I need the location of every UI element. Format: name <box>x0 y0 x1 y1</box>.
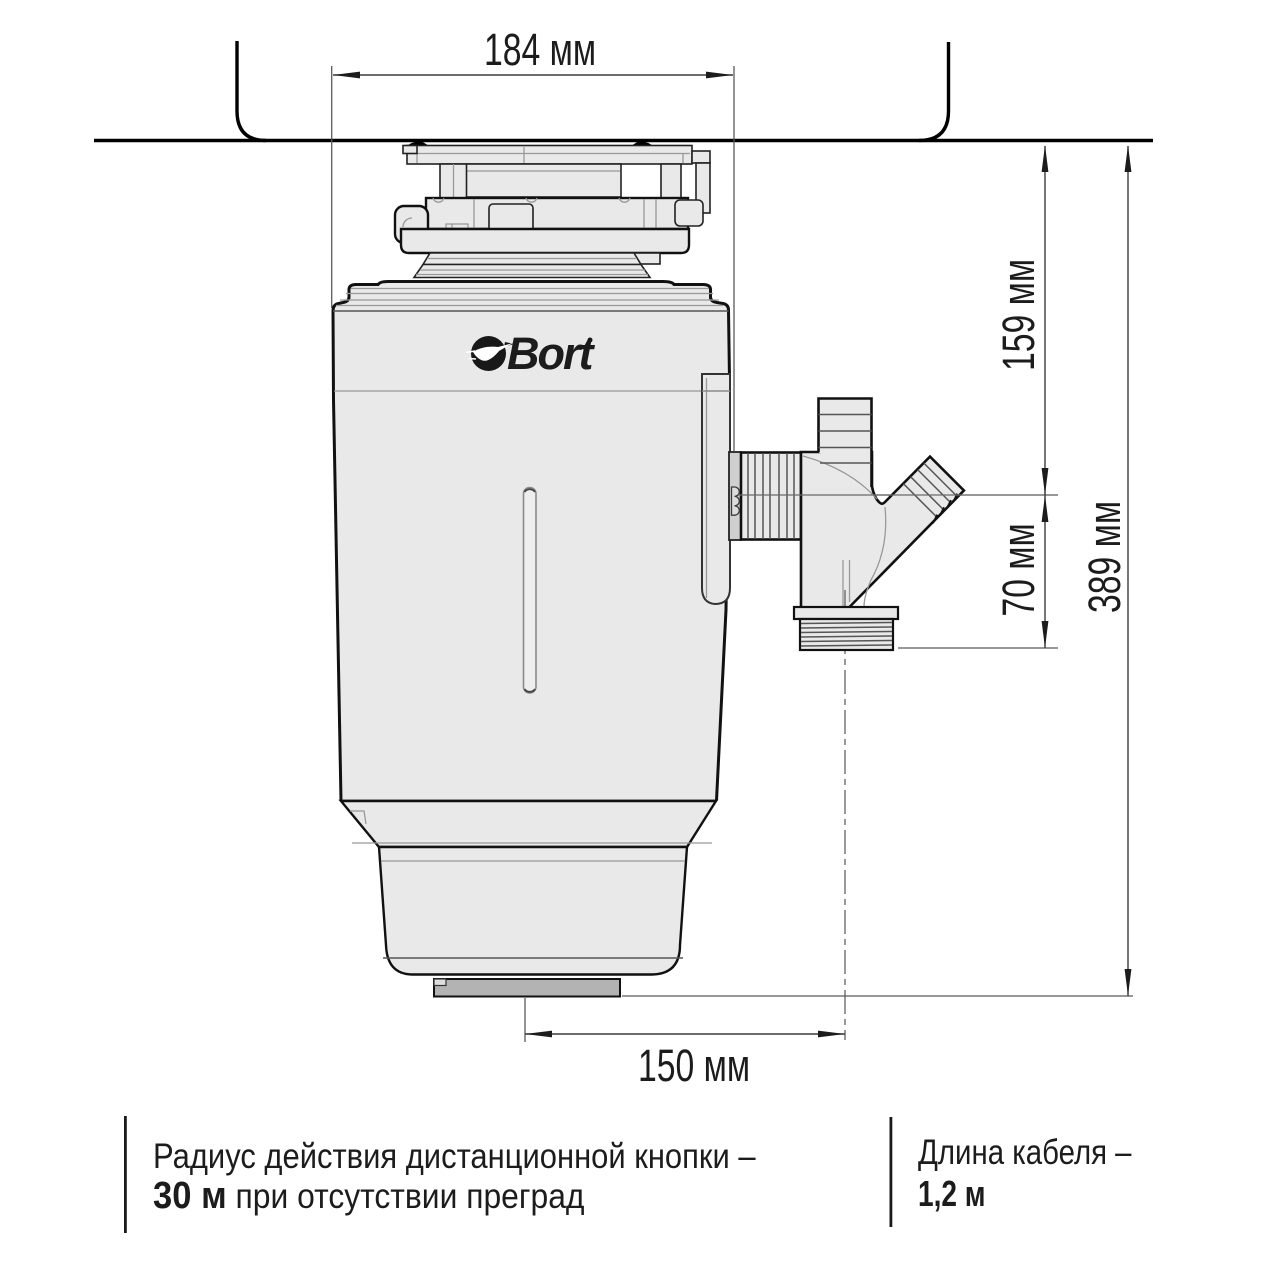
svg-text:389 мм: 389 мм <box>1080 501 1130 613</box>
svg-text:70 мм: 70 мм <box>994 523 1044 616</box>
svg-text:Длина кабеля –: Длина кабеля – <box>918 1133 1132 1172</box>
svg-text:Bort: Bort <box>507 328 595 379</box>
svg-text:184 мм: 184 мм <box>484 25 596 75</box>
svg-text:150 мм: 150 мм <box>638 1041 750 1091</box>
svg-text:30 м при отсутствии преград: 30 м при отсутствии преград <box>153 1173 585 1216</box>
svg-text:159 мм: 159 мм <box>994 259 1044 371</box>
svg-text:1,2 м: 1,2 м <box>918 1174 986 1214</box>
svg-text:Радиус действия дистанционной: Радиус действия дистанционной кнопки – <box>153 1137 756 1176</box>
